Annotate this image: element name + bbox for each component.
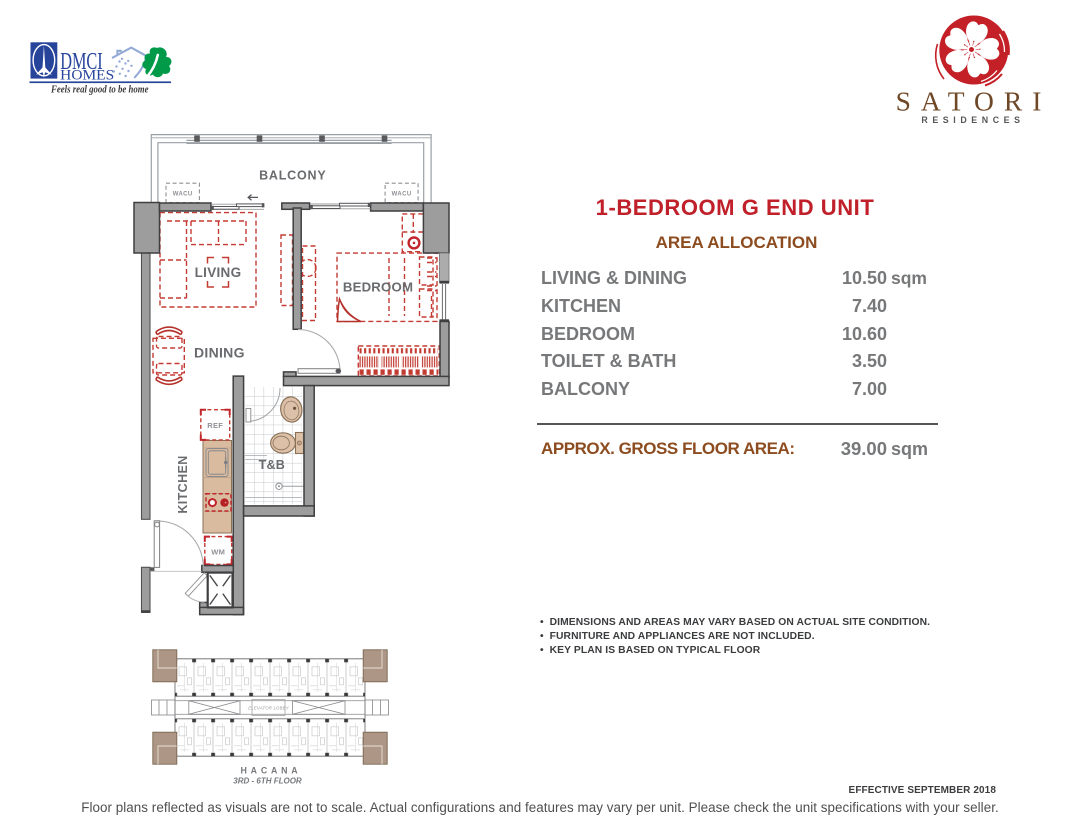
svg-text:T&B: T&B: [259, 458, 285, 472]
svg-text:WM: WM: [211, 547, 225, 556]
svg-text:3RD - 6TH FLOOR: 3RD - 6TH FLOOR: [233, 777, 302, 786]
svg-text:BALCONY: BALCONY: [259, 169, 326, 183]
svg-text:WACU: WACU: [392, 192, 412, 198]
svg-text:WACU: WACU: [173, 192, 193, 198]
svg-text:KITCHEN: KITCHEN: [176, 455, 190, 513]
svg-text:DINING: DINING: [194, 345, 245, 361]
svg-text:BEDROOM: BEDROOM: [343, 280, 413, 295]
svg-text:REF: REF: [207, 421, 223, 430]
svg-text:HACANA: HACANA: [241, 766, 302, 776]
svg-text:LIVING: LIVING: [195, 265, 242, 280]
svg-text:ELEVATOR LOBBY: ELEVATOR LOBBY: [248, 706, 290, 711]
